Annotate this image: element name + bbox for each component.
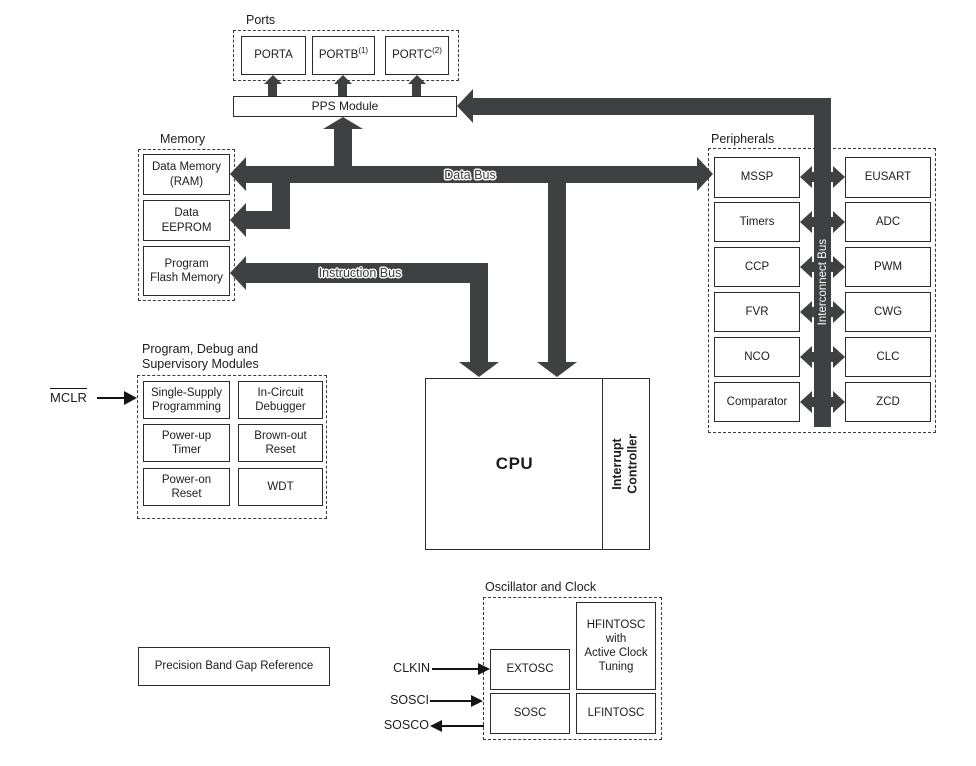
mclr-wire — [97, 397, 127, 399]
peripherals-section-title: Peripherals — [711, 132, 774, 147]
pps-module-block: PPS Module — [233, 96, 457, 117]
row2-left-arrowhead-icon — [800, 211, 812, 233]
row1-right-arrowhead-icon — [833, 166, 845, 188]
databus-cpu-arrowhead-icon — [537, 362, 577, 377]
program-flash-memory-block: Program Flash Memory — [143, 246, 230, 296]
portc-footnote: (2) — [432, 47, 442, 56]
lfintosc-block: LFINTOSC — [576, 693, 656, 734]
zcd-block: ZCD — [845, 382, 931, 422]
portb-footnote: (1) — [358, 47, 368, 56]
oscillator-section-title: Oscillator and Clock — [485, 580, 596, 595]
ports-section-title: Ports — [246, 13, 275, 28]
instrbus-label: Instruction Bus — [290, 263, 430, 283]
porta-label: PORTA — [254, 48, 293, 62]
row6-link-shaft — [810, 397, 835, 407]
clc-block: CLC — [845, 337, 931, 377]
pps-portc-arrowhead-icon — [408, 75, 426, 84]
interconnect-top-bar — [473, 98, 831, 115]
ccp-block: CCP — [714, 247, 800, 287]
pps-portb-arrowhead-icon — [334, 75, 352, 84]
pwm-block: PWM — [845, 247, 931, 287]
mclr-arrowhead-icon — [124, 391, 137, 405]
power-on-reset-block: Power-on Reset — [143, 468, 230, 506]
pps-porta-arrowhead-icon — [264, 75, 282, 84]
hfintosc-block: HFINTOSC with Active Clock Tuning — [576, 602, 656, 690]
cpu-core-area: CPU — [426, 379, 603, 549]
databus-to-pps-shaft — [334, 129, 352, 167]
cwg-block: CWG — [845, 292, 931, 332]
wdt-block: WDT — [238, 468, 323, 506]
row2-right-arrowhead-icon — [833, 211, 845, 233]
cpu-block: CPU Interrupt Controller — [425, 378, 650, 550]
pps-porta-arrow-shaft — [268, 84, 277, 96]
row3-left-arrowhead-icon — [800, 256, 812, 278]
clkin-pin-label: CLKIN — [372, 661, 430, 675]
nco-block: NCO — [714, 337, 800, 377]
extosc-block: EXTOSC — [490, 649, 570, 690]
portc-block: PORTC(2) — [385, 36, 449, 75]
databus-ram-arrowhead-icon — [230, 157, 246, 191]
mclr-text: MCLR — [50, 388, 87, 405]
in-circuit-debugger-block: In-Circuit Debugger — [238, 381, 323, 419]
adc-block: ADC — [845, 202, 931, 242]
instrbus-flash-arrowhead-icon — [230, 256, 246, 290]
row4-left-arrowhead-icon — [800, 301, 812, 323]
clkin-arrowhead-icon — [478, 663, 490, 675]
instrbus-cpu-drop — [470, 263, 488, 363]
data-memory-ram-block: Data Memory (RAM) — [143, 154, 230, 195]
mcu-block-diagram: Ports PORTA PORTB(1) PORTC(2) PPS Module… — [0, 0, 976, 766]
sosci-wire — [430, 700, 473, 702]
eeprom-branch-horizontal — [246, 211, 290, 229]
sosco-wire — [442, 725, 484, 727]
eeprom-branch-arrowhead-icon — [230, 203, 246, 237]
databus-to-pps-arrowhead-icon — [323, 117, 363, 129]
portb-block: PORTB(1) — [312, 36, 375, 75]
single-supply-programming-block: Single-Supply Programming — [143, 381, 230, 419]
sosci-arrowhead-icon — [471, 695, 483, 707]
sosco-pin-label: SOSCO — [363, 718, 429, 732]
databus-mssp-arrowhead-icon — [697, 157, 713, 191]
memory-section-title: Memory — [160, 132, 205, 147]
interconnect-to-pps-arrowhead-icon — [457, 89, 473, 123]
mclr-pin-label: MCLR — [50, 388, 87, 405]
row5-left-arrowhead-icon — [800, 346, 812, 368]
fvr-block: FVR — [714, 292, 800, 332]
pps-portc-arrow-shaft — [412, 84, 421, 96]
cpu-label: CPU — [496, 454, 533, 475]
interconnect-bus-label: Interconnect Bus — [814, 200, 831, 365]
pps-portb-arrow-shaft — [338, 84, 347, 96]
porta-block: PORTA — [241, 36, 306, 75]
timers-block: Timers — [714, 202, 800, 242]
sosc-block: SOSC — [490, 693, 570, 734]
databus-label: Data Bus — [410, 166, 530, 183]
row6-right-arrowhead-icon — [833, 391, 845, 413]
interrupt-controller-label: Interrupt Controller — [610, 434, 641, 494]
instrbus-cpu-arrowhead-icon — [459, 362, 499, 377]
sosco-arrowhead-icon — [430, 720, 442, 732]
interconnect-bus-label-text: Interconnect Bus — [817, 239, 829, 325]
sosci-pin-label: SOSCI — [371, 693, 429, 707]
power-up-timer-block: Power-up Timer — [143, 424, 230, 462]
interrupt-controller-panel: Interrupt Controller — [602, 379, 649, 549]
row4-right-arrowhead-icon — [833, 301, 845, 323]
row5-right-arrowhead-icon — [833, 346, 845, 368]
row1-link-shaft — [810, 172, 835, 182]
databus-cpu-drop — [548, 183, 566, 363]
data-eeprom-block: Data EEPROM — [143, 200, 230, 241]
band-gap-reference-block: Precision Band Gap Reference — [138, 647, 330, 686]
row6-left-arrowhead-icon — [800, 391, 812, 413]
brown-out-reset-block: Brown-out Reset — [238, 424, 323, 462]
comparator-block: Comparator — [714, 382, 800, 422]
row1-left-arrowhead-icon — [800, 166, 812, 188]
clkin-wire — [432, 668, 480, 670]
portc-label: PORTC(2) — [392, 48, 442, 62]
row3-right-arrowhead-icon — [833, 256, 845, 278]
mssp-block: MSSP — [714, 157, 800, 198]
debug-section-title: Program, Debug and Supervisory Modules — [142, 342, 259, 372]
portb-label: PORTB(1) — [319, 48, 368, 62]
eusart-block: EUSART — [845, 157, 931, 198]
